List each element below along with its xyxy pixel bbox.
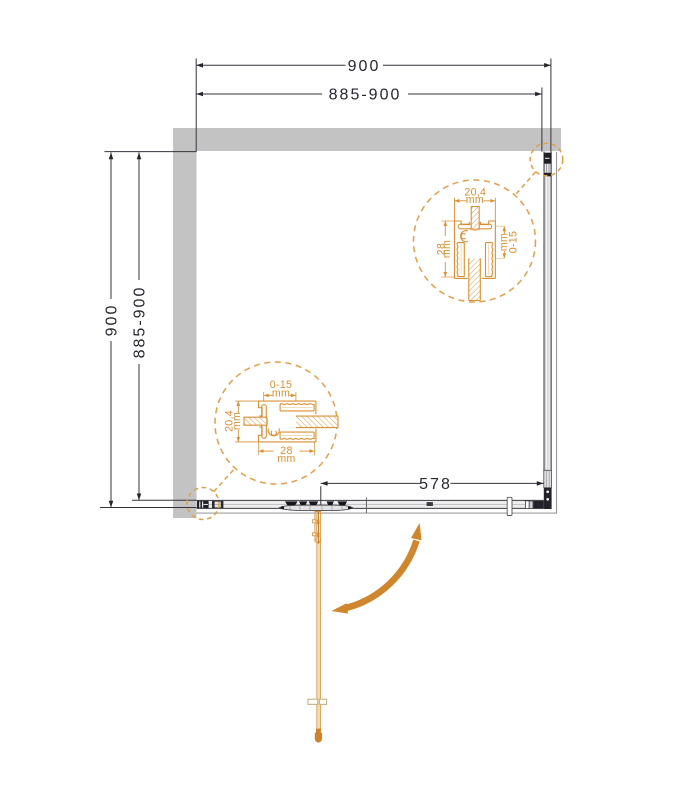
svg-text:mm: mm (277, 453, 295, 465)
svg-text:900: 900 (348, 58, 381, 75)
svg-text:mm: mm (466, 194, 484, 206)
svg-text:900: 900 (103, 304, 120, 337)
svg-text:885-900: 885-900 (131, 286, 148, 359)
svg-text:578: 578 (419, 476, 452, 493)
svg-text:mm: mm (441, 240, 453, 258)
svg-text:mm: mm (272, 388, 290, 400)
svg-text:mm: mm (231, 412, 243, 430)
svg-text:mm: mm (498, 233, 510, 251)
svg-text:885-900: 885-900 (329, 86, 402, 103)
